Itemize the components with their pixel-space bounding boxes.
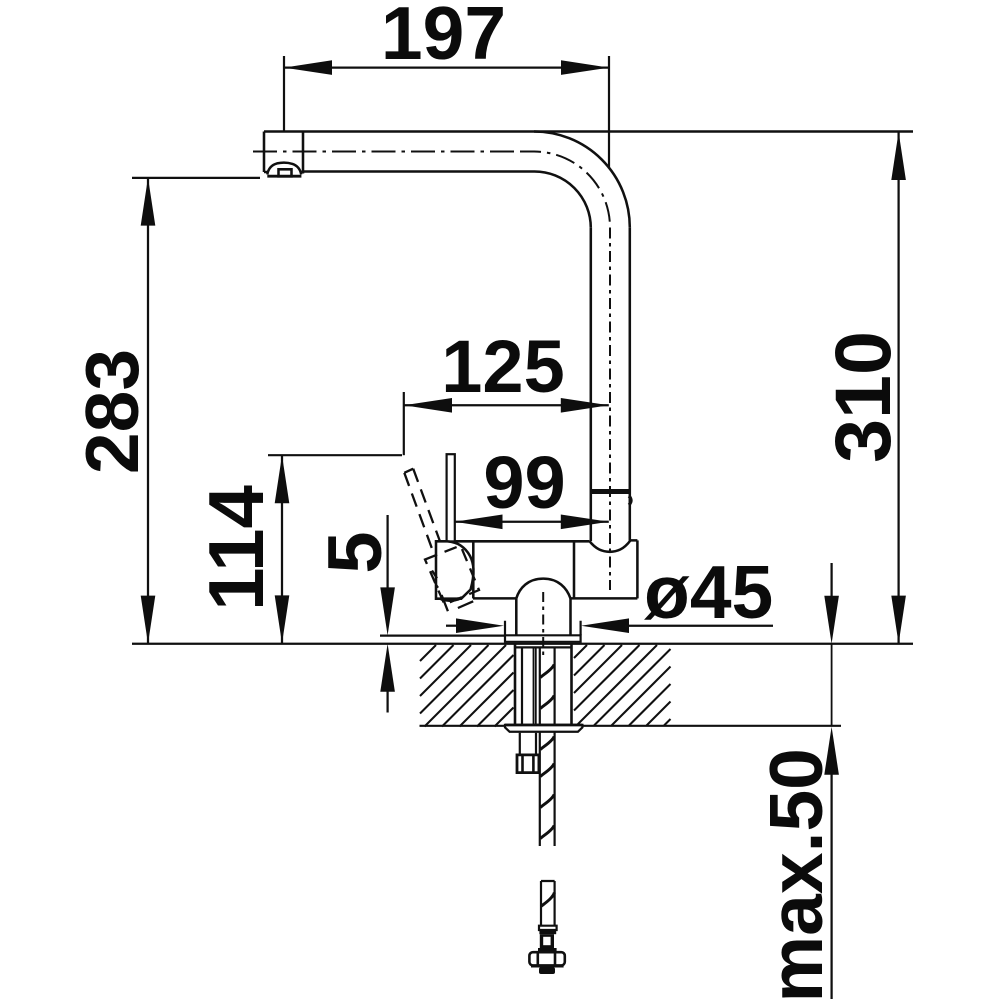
svg-text:197: 197 (381, 0, 506, 75)
svg-text:114: 114 (192, 485, 280, 611)
svg-text:283: 283 (70, 349, 154, 474)
svg-text:310: 310 (818, 331, 907, 463)
svg-text:125: 125 (441, 325, 564, 408)
svg-text:99: 99 (483, 441, 565, 524)
svg-text:5: 5 (313, 531, 398, 573)
svg-text:ø45: ø45 (644, 550, 773, 634)
svg-text:max.50: max.50 (754, 748, 838, 999)
